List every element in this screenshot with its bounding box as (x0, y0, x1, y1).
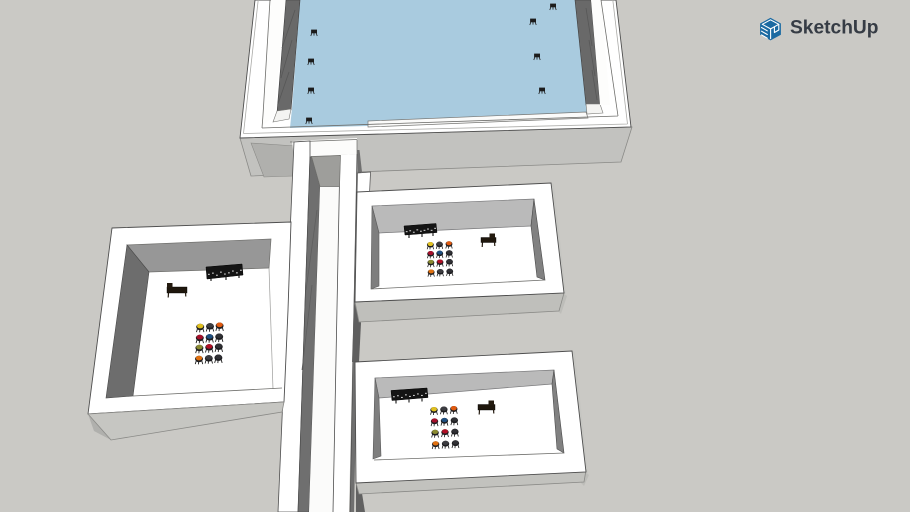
svg-text:SketchUp: SketchUp (790, 18, 879, 39)
